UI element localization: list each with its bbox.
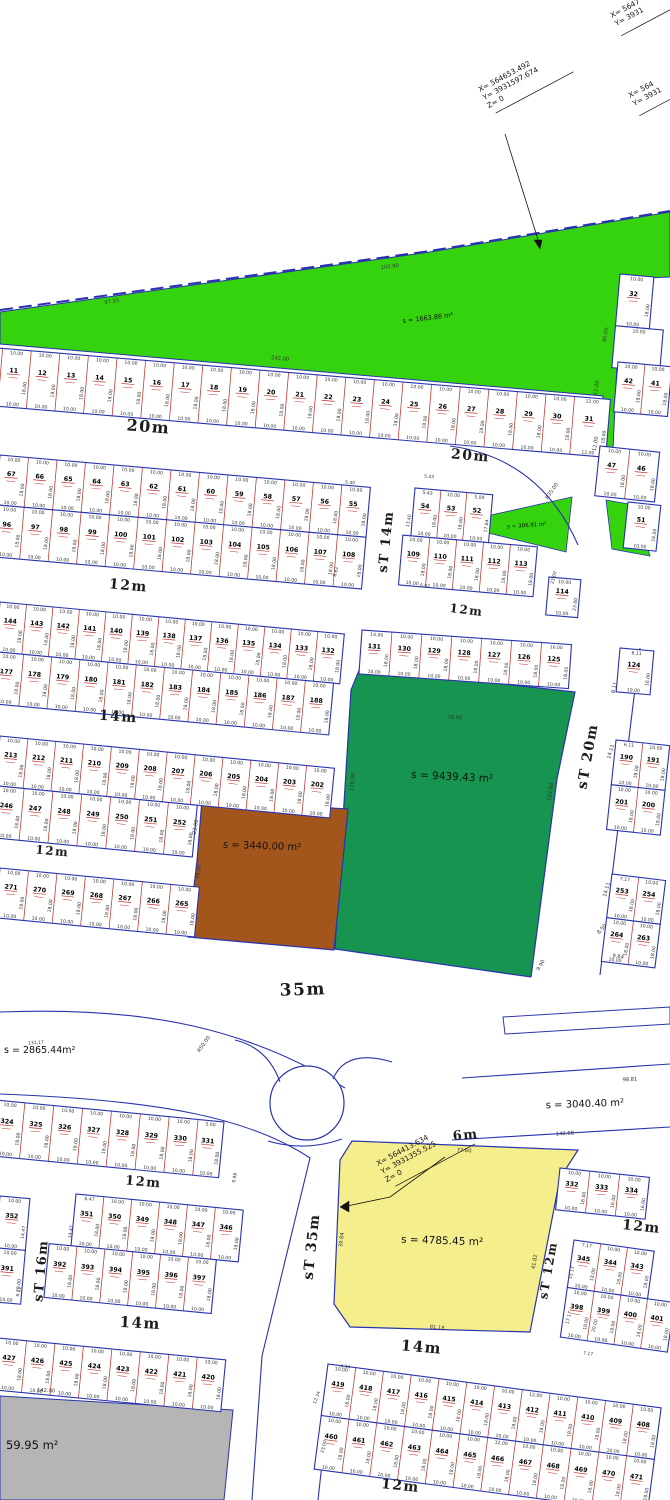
street-label-12m: 12m [35, 843, 70, 860]
dimension-label: R35.00 [544, 482, 560, 501]
parcel-top-dim: 10.00 [176, 1119, 190, 1126]
parcel-top-dim: 10.00 [111, 1199, 125, 1206]
parcel-cell [284, 372, 317, 432]
parcel-rows-67-55-96-108: 10.0010.0018.006710.0010.0018.006610.001… [0, 455, 371, 589]
parcel-top-dim: 10.00 [353, 379, 367, 386]
parcel-top-dim: 10.00 [143, 667, 157, 674]
parcel-top-dim: 10.00 [292, 482, 306, 489]
parcel-block-54-52-109-113: 5.4310.0018.005410.0010.0018.00535.0010.… [398, 487, 541, 597]
parcel-top-dim: 6.11 [631, 650, 642, 657]
street-label-20m: 20m [126, 415, 171, 437]
area3040-top-edge [462, 1064, 670, 1078]
parcel-row-271-265: 10.0010.0018.0027110.0010.0018.0027010.0… [0, 868, 199, 937]
brown-parcel [188, 800, 348, 950]
parcel-row-324-331: 10.0010.0018.0032410.0010.0018.0032510.0… [0, 1100, 224, 1178]
dimension-label: 5.40 [345, 480, 356, 487]
parcel-top-dim: 10.00 [165, 619, 179, 626]
parcel-top-dim: 10.00 [112, 1251, 126, 1258]
parcel-cell [227, 368, 260, 428]
parcel-top-dim: 10.00 [490, 544, 504, 551]
parcel-cell [169, 363, 202, 423]
parcel-cell [341, 377, 374, 437]
parcel-top-dim: 10.00 [7, 738, 21, 745]
parcel-cell [398, 382, 431, 442]
roundabout-circle [270, 1066, 344, 1140]
parcel-top-dim: 10.00 [651, 366, 665, 373]
parcel-block-253-263: 7.1710.0018.0025310.0010.0018.0025410.00… [601, 874, 666, 968]
parcel-cell [26, 351, 59, 411]
parcel-top-dim: 10.00 [176, 804, 190, 811]
dimension-label: 9.90 [536, 959, 547, 972]
parcel-top-dim: 10.00 [345, 537, 359, 544]
parcel-top-dim: 10.00 [174, 522, 188, 529]
parcel-top-dim: 10.00 [176, 1356, 190, 1363]
parcel-top-dim: 10.00 [149, 884, 163, 891]
parcel-top-dim: 10.00 [447, 492, 461, 499]
roundabout-fillet-nw [235, 1040, 280, 1082]
parcel-cell [370, 380, 403, 440]
dimension-label: 6.82 [420, 583, 431, 590]
parcel-cell [513, 392, 546, 452]
street-label-12m: 12m [380, 1476, 420, 1496]
parcel-top-dim: 10.00 [439, 386, 453, 393]
parcel-top-dim: 10.00 [35, 741, 49, 748]
parcel-top-dim: 10.00 [7, 457, 21, 464]
parcel-top-dim: 10.00 [88, 514, 102, 521]
parcel-top-dim: 10.00 [7, 870, 21, 877]
parcel-top-dim: 10.00 [312, 682, 326, 689]
parcel-block-124: 6.1110.0016.00124 [616, 648, 654, 695]
parcel-top-dim: 10.00 [210, 367, 224, 374]
parcel-top-dim: 10.00 [150, 469, 164, 476]
cadastral-map: 10.0010.0018.001010.0010.0018.001110.001… [0, 0, 670, 1500]
parcel-top-dim: 10.00 [138, 616, 152, 623]
parcel-top-dim: 10.00 [87, 662, 101, 669]
parcel-top-dim: 10.00 [60, 512, 74, 519]
parcel-top-dim: 10.00 [181, 365, 195, 372]
parcel-top-dim: 10.00 [284, 680, 298, 687]
parcel-top-dim: 10.00 [316, 534, 330, 541]
callout-right: X= 564Y= 3931 [626, 59, 670, 116]
parcel-top-dim: 10.00 [228, 675, 242, 682]
parcel-top-dim: 10.00 [31, 509, 45, 516]
street-label-12m: 12m [125, 1173, 163, 1191]
parcel-top-dim: 10.00 [117, 517, 131, 524]
parcel-top-dim: 10.00 [256, 677, 270, 684]
parcel-top-dim: 5.43 [422, 490, 433, 497]
parcel-top-dim: 10.00 [178, 886, 192, 893]
parcel-top-dim: 10.00 [33, 606, 47, 613]
parcel-row-332-334: 10.0010.0016.0033210.0010.0016.0033310.0… [556, 1168, 650, 1220]
parcel-top-dim: 10.00 [35, 873, 49, 880]
parcel-top-dim: 10.00 [258, 762, 272, 769]
parcel-top-dim: 10.00 [148, 1116, 162, 1123]
parcel-cell [164, 1117, 198, 1176]
parcel-top-dim: 10.00 [153, 362, 167, 369]
parcel-top-dim: 10.00 [64, 875, 78, 882]
parcel-top-dim: 10.00 [517, 546, 531, 553]
parcel-top-dim: 10.00 [244, 626, 258, 633]
parcel-cell [427, 384, 460, 444]
dimension-label: 78.95 [447, 715, 462, 722]
parcel-top-dim: 10.00 [235, 477, 249, 484]
parcel-top-dim: 10.00 [202, 524, 216, 531]
cadastral-map-page: 10.0010.0018.001010.0010.0018.001110.001… [0, 0, 670, 1500]
parcel-top-dim: 10.00 [10, 350, 24, 357]
dimension-label: 5.43 [424, 474, 435, 481]
parcel-top-dim: 10.00 [460, 638, 474, 645]
parcel-block-32: 10.0010.0018.003210.0010.00 [612, 274, 668, 372]
parcel-top-dim: 10.00 [121, 881, 135, 888]
parcel-top-dim: 10.00 [118, 799, 132, 806]
parcel-top-dim: 10.00 [118, 749, 132, 756]
parcel-top-dim: 10.00 [93, 464, 107, 471]
parcel-top-dim: 10.00 [96, 357, 110, 364]
parcel-block-42: 10.0010.0018.004210.0010.0018.0041 [614, 362, 670, 417]
parcel-cell [484, 389, 517, 449]
parcel-top-dim: 10.00 [296, 374, 310, 381]
dimension-label: 12.34 [312, 1390, 322, 1404]
area-gray: 59.95 m² [6, 1438, 58, 1452]
parcel-top-dim: 12.00 [585, 399, 599, 406]
parcel-top-dim: 10.00 [2, 654, 16, 661]
dimension-label: 98.81 [622, 1077, 637, 1084]
dimension-label: 131.17 [28, 1040, 44, 1047]
parcel-top-dim: 10.00 [145, 519, 159, 526]
parcel-rows-419-408-460-471: 10.0010.0018.0041910.0010.0018.0041810.0… [314, 1364, 661, 1500]
parcel-top-dim: 10.00 [32, 1105, 46, 1112]
parcel-top-dim: 10.00 [467, 389, 481, 396]
parcel-top-dim: 10.00 [178, 472, 192, 479]
area-3040: s = 3040.40 m² [546, 1098, 625, 1112]
parcel-top-dim: 10.00 [171, 669, 185, 676]
parcel-top-dim: 10.00 [204, 1359, 218, 1366]
parcel-top-dim: 10.00 [92, 878, 106, 885]
parcel-top-dim: 10.00 [174, 754, 188, 761]
street-label-14m: 14m [119, 1313, 161, 1333]
parcel-top-dim: 10.00 [62, 1345, 76, 1352]
parcel-top-dim: 10.00 [147, 802, 161, 809]
parcel-top-dim: 10.00 [147, 1354, 161, 1361]
parcel-top-dim: 10.00 [5, 1340, 19, 1347]
parcel-top-dim: 10.00 [231, 527, 245, 534]
parcel-top-dim: 10.00 [463, 542, 477, 549]
callout-top-right: X= 5647Y= 3931 [608, 0, 670, 36]
parcel-rows-351-346-392-397: 6.4710.0018.0035110.0010.0018.0035010.00… [44, 1192, 243, 1316]
parcel-top-dim: 5.00 [474, 494, 485, 501]
parcel-top-dim: 10.00 [8, 1198, 22, 1205]
parcel-top-dim: 10.00 [520, 642, 534, 649]
parcel-top-dim: 10.00 [267, 372, 281, 379]
parcel-top-dim: 10.00 [382, 381, 396, 388]
parcel-top-dim: 10.00 [112, 614, 126, 621]
parcel-top-dim: 10.00 [200, 672, 214, 679]
parcel-top-dim: 10.00 [409, 537, 423, 544]
street-label-6m: 6m [452, 1127, 479, 1144]
parcel-top-dim: 10.00 [38, 353, 52, 360]
parcel-top-dim: 6.11 [624, 742, 635, 749]
parcel-top-dim: 10.00 [436, 539, 450, 546]
parcel-top-dim: 10.00 [630, 276, 644, 283]
parcel-top-dim: 10.00 [3, 1102, 17, 1109]
street-label-14m: 14m [98, 708, 138, 727]
callout-main: X= 564653.492Y= 3931597.674Z= 0 [476, 43, 574, 116]
street-label-sT-14m: sT 14m [376, 510, 397, 574]
parcel-top-dim: 10.00 [31, 791, 45, 798]
parcel-top-dim: 10.00 [85, 611, 99, 618]
street-label-20m: 20m [450, 446, 490, 465]
parcel-top-dim: 10.00 [324, 633, 338, 640]
parcel-top-dim: 10.00 [525, 393, 539, 400]
leader-main [505, 134, 540, 246]
parcel-top-dim: 10.00 [218, 623, 232, 630]
parcel-top-dim: 10.00 [60, 793, 74, 800]
parcel-top-dim: 10.00 [632, 329, 646, 336]
street-label-35m: 35m [279, 979, 326, 1001]
parcel-top-dim: 10.00 [288, 532, 302, 539]
parcel-block-51: 10.0010.0016.0051 [623, 502, 661, 552]
parcel-top-dim: 10.00 [285, 765, 299, 772]
parcel-cell [255, 370, 288, 430]
parcel-top-dim: 7.17 [619, 876, 630, 883]
parcel-top-dim: 10.00 [400, 634, 414, 641]
parcel-top-dim: 10.00 [320, 484, 334, 491]
parcel-cell [55, 353, 88, 413]
parcel-column-352-391: 10.0010.0014.4735210.0010.0020.00391 [0, 1196, 30, 1305]
parcel-cell [77, 1108, 111, 1167]
parcel-top-dim: 10.00 [496, 391, 510, 398]
parcel-top-dim: 10.00 [324, 377, 338, 384]
dimension-label: R50.00 [196, 1035, 212, 1054]
parcel-top-dim: 10.00 [115, 664, 129, 671]
dimension-label: 77.60 [456, 1148, 471, 1155]
parcel-top-dim: 10.00 [167, 1256, 181, 1263]
parcel-top-dim: 10.00 [61, 1108, 75, 1115]
parcel-cell [198, 365, 231, 425]
parcel-top-dim: 10.00 [139, 1254, 153, 1261]
parcel-top-dim: 10.00 [121, 467, 135, 474]
parcel-cell [106, 1111, 140, 1170]
parcel-top-dim: 10.00 [119, 1113, 133, 1120]
parcel-top-dim: 10.00 [90, 746, 104, 753]
dimension-label: 142.00 [37, 1388, 55, 1395]
parcel-top-dim: 10.00 [624, 364, 638, 371]
roundabout-fillet-ne [333, 1058, 392, 1079]
parcel-top-dim: 10.00 [64, 462, 78, 469]
parcel-top-dim: 10.00 [239, 369, 253, 376]
parcel-top-dim: 10.00 [349, 487, 363, 494]
area-island: s = 2865.44m² [4, 1045, 75, 1056]
street-label-12m: 12m [449, 601, 484, 619]
parcel-cell [48, 1106, 82, 1165]
parcel-top-dim: 10.00 [33, 1343, 47, 1350]
parcel-top-dim: 10.00 [59, 659, 73, 666]
parcel-top-dim: 10.00 [194, 1207, 208, 1214]
parcel-top-dim: 10.00 [230, 759, 244, 766]
parcel-top-dim: 10.00 [36, 459, 50, 466]
parcel-top-dim: 10.00 [89, 796, 103, 803]
parcel-cell [312, 375, 345, 435]
parcel-cell [0, 348, 31, 408]
dimension-label: 142.68 [556, 1131, 574, 1138]
parcel-top-dim: 10.00 [59, 609, 73, 616]
parcel-top-dim: 10.00 [313, 767, 327, 774]
parcel-top-dim: 10.00 [195, 1259, 209, 1266]
parcel-top-dim: 10.00 [90, 1110, 104, 1117]
parcel-top-dim: 10.00 [297, 631, 311, 638]
median-strip [503, 1007, 670, 1034]
street-label-12m: 12m [621, 1217, 661, 1237]
parcel-cell [135, 1114, 169, 1173]
parcel-block-190-200: 6.1110.0018.0019010.0010.0018.0019110.00… [607, 740, 670, 836]
parcel-top-dim: 10.00 [549, 644, 563, 651]
parcel-top-dim: 14.00 [370, 632, 384, 639]
street-label-14m: 14m [400, 1336, 443, 1358]
parcel-block-345-343-398-401: 7.1710.0018.0034510.0010.0018.0034410.00… [560, 1240, 670, 1352]
dimension-label: 81.18 [429, 1324, 444, 1332]
parcel-top-dim: 10.00 [56, 1246, 70, 1253]
parcel-top-dim: 10.00 [202, 757, 216, 764]
parcel-top-dim: 10.00 [138, 1201, 152, 1208]
parcel-cell [455, 387, 488, 447]
parcel-top-dim: 10.00 [410, 384, 424, 391]
parcel-top-dim: 10.00 [263, 479, 277, 486]
dimension-label: 9.98 [231, 1172, 239, 1183]
parcel-cell [112, 358, 145, 418]
parcel-cell [19, 1103, 53, 1162]
parcel-top-dim: 10.00 [2, 788, 16, 795]
parcel-top-dim: 10.00 [62, 743, 76, 750]
parcel-top-dim: 10.00 [430, 636, 444, 643]
parcel-top-dim: 10.00 [119, 1351, 133, 1358]
dimension-label: 7.17 [583, 1350, 594, 1357]
parcel-top-dim: 10.00 [553, 396, 567, 403]
parcel-top-dim: 10.00 [146, 751, 160, 758]
parcel-top-dim: 10.00 [558, 579, 572, 586]
parcel-rows-144-132-177-188: 10.0010.0018.0014410.0010.0018.0014310.0… [0, 602, 344, 736]
parcel-top-dim: 10.00 [67, 355, 81, 362]
parcel-top-dim: 10.00 [6, 604, 20, 611]
parcel-top-dim: 10.00 [490, 640, 504, 647]
parcel-top-dim: 10.00 [3, 1250, 17, 1257]
parcel-top-dim: 10.00 [259, 529, 273, 536]
parcel-top-dim: 10.00 [84, 1248, 98, 1255]
parcel-top-dim: 10.00 [207, 474, 221, 481]
parcel-top-dim: 10.00 [124, 360, 138, 367]
parcel-top-dim: 10.00 [191, 621, 205, 628]
parcel-top-dim: 10.00 [271, 628, 285, 635]
parcel-top-dim: 6.47 [84, 1196, 95, 1203]
parcel-cell [84, 356, 117, 416]
street-label-sT-20m: sT 20m [574, 722, 601, 790]
street-label-12m: 12m [108, 576, 148, 595]
parcel-top-dim: 10.00 [90, 1348, 104, 1355]
parcel-cell [141, 360, 174, 420]
parcel-top-dim: 10.00 [30, 656, 44, 663]
parcel-cell [541, 394, 574, 454]
street-label-sT-35m: sT 35m [301, 1213, 324, 1281]
parcel-top-dim: 10.00 [166, 1204, 180, 1211]
parcel-top-dim: 10.00 [222, 1209, 236, 1216]
parcel-top-dim: 10.00 [3, 507, 17, 514]
parcel-top-dim: 5.60 [205, 1121, 216, 1128]
parcel-block-47-46: 10.0010.0018.004710.0010.0018.0046 [595, 446, 660, 502]
